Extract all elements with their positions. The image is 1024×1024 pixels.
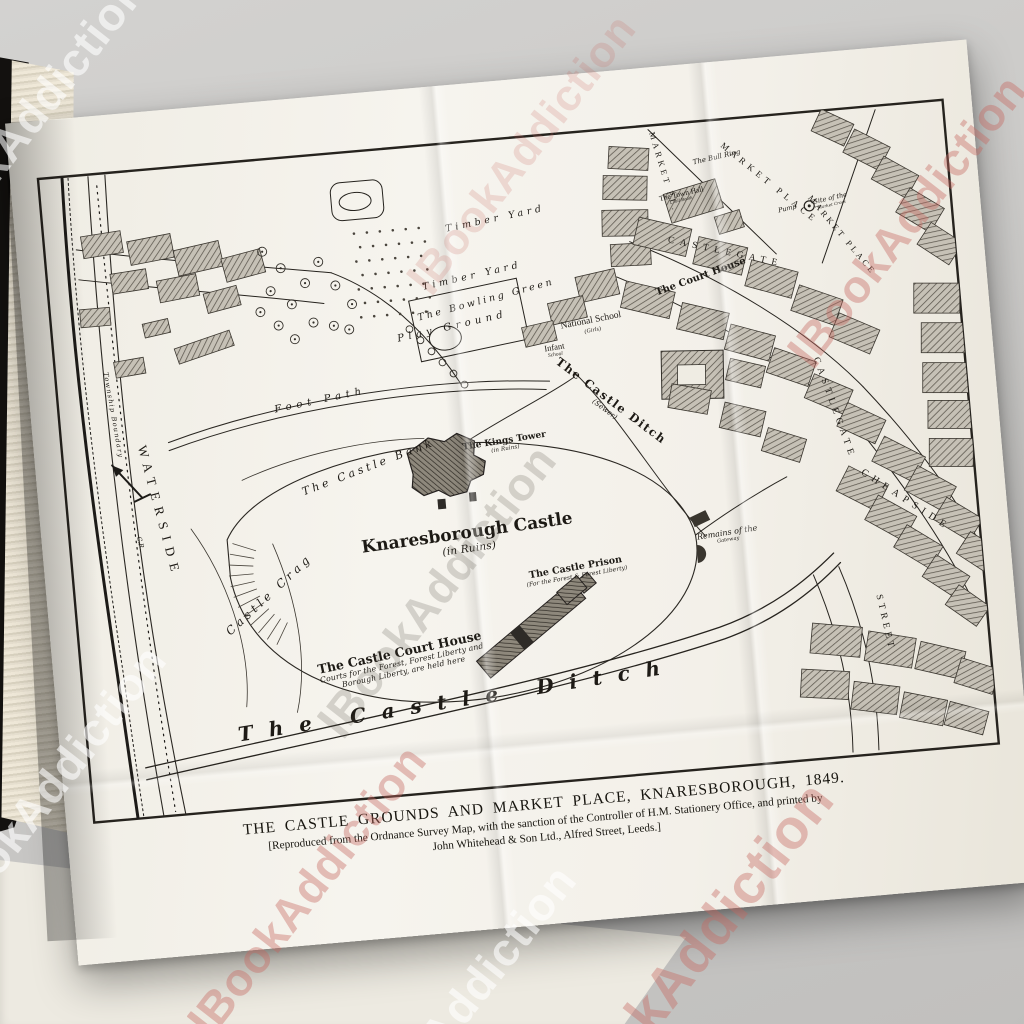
- map-label: InfantSchool: [544, 341, 566, 359]
- map-label: National School(Girls): [560, 311, 624, 340]
- map-label: Castle Crag: [224, 551, 315, 637]
- map-label: Knaresborough Castle(in Ruins): [361, 510, 576, 569]
- map-label: CHEAPSIDE: [859, 468, 952, 534]
- map-label: Township Boundary: [102, 372, 124, 459]
- map-label: Play Ground: [397, 310, 509, 345]
- map-label: Site of theMarket Cross: [813, 191, 849, 210]
- map-label: The Castle Prison(For the Forest & Fores…: [524, 554, 628, 589]
- map-label: WATERSIDE: [135, 444, 184, 579]
- map-label: STREET: [873, 594, 896, 652]
- map-label: CASTLEGATE: [810, 356, 856, 461]
- map-sheet: WATERSIDETownship BoundaryC.R.Foot PathT…: [5, 40, 1024, 966]
- map-label: Foot Path: [274, 386, 367, 416]
- map-label: Pump: [777, 203, 797, 214]
- map-label: The Castle Bank: [301, 437, 437, 498]
- book-photo: WATERSIDETownship BoundaryC.R.Foot PathT…: [0, 0, 1024, 1024]
- map-label: The Castle Ditch: [237, 655, 678, 745]
- map-label: Timber Yard: [445, 204, 546, 235]
- map-label: The Castle Ditch(Sewer): [549, 355, 669, 453]
- map-label: The Castle Court HouseCourts for the For…: [316, 628, 486, 693]
- map-label: C.R.: [135, 536, 145, 551]
- map-label: The Court House: [655, 256, 748, 298]
- map-label: The Kings Tower(in Ruins): [462, 431, 548, 460]
- map-label: Remains of theGateway: [697, 524, 759, 548]
